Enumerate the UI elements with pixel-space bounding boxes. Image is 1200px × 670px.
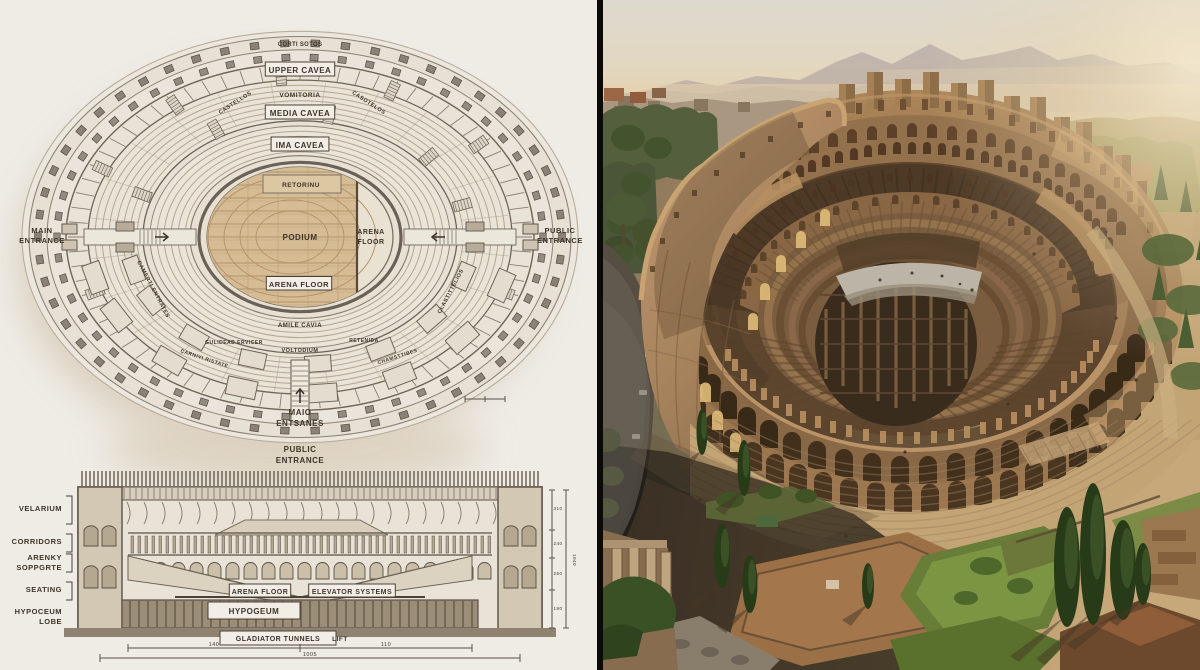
svg-text:PUBLIC: PUBLIC <box>545 226 576 235</box>
svg-text:ARENA FLOOR: ARENA FLOOR <box>269 280 329 289</box>
svg-text:ENTRANCE: ENTRANCE <box>537 236 583 245</box>
svg-text:GULIDEAD ERVICER: GULIDEAD ERVICER <box>205 340 263 346</box>
svg-text:HYPOCEUM: HYPOCEUM <box>15 607 62 616</box>
svg-text:ENTRANCE: ENTRANCE <box>276 456 325 465</box>
svg-text:140: 140 <box>209 642 220 648</box>
svg-text:310: 310 <box>553 506 562 511</box>
svg-text:240: 240 <box>553 541 562 546</box>
svg-text:CORRIDORS: CORRIDORS <box>12 537 62 546</box>
svg-text:LIFT: LIFT <box>332 636 348 643</box>
svg-text:FLOOR: FLOOR <box>358 239 385 246</box>
svg-text:LOBE: LOBE <box>39 617 62 626</box>
svg-text:MAIN: MAIN <box>31 226 52 235</box>
svg-text:CORTI SOTOS: CORTI SOTOS <box>278 42 323 48</box>
svg-text:RETENIDA: RETENIDA <box>349 338 379 344</box>
svg-text:110: 110 <box>381 642 391 648</box>
svg-text:ENTSANES: ENTSANES <box>276 419 324 428</box>
svg-text:HYPOGEUM: HYPOGEUM <box>229 607 280 616</box>
svg-text:VELARIUM: VELARIUM <box>19 504 62 513</box>
svg-text:VOMITORIA: VOMITORIA <box>279 92 320 99</box>
svg-text:SOPPGRTE: SOPPGRTE <box>16 563 62 572</box>
svg-text:1040: 1040 <box>572 554 577 566</box>
svg-text:GLADIATOR TUNNELS: GLADIATOR TUNNELS <box>236 636 320 643</box>
svg-text:180: 180 <box>553 606 562 611</box>
svg-text:MEDIA CAVEA: MEDIA CAVEA <box>270 109 331 118</box>
svg-text:ARENKY: ARENKY <box>27 553 62 562</box>
svg-text:AMILE CAVIA: AMILE CAVIA <box>278 323 322 329</box>
svg-text:MAIO: MAIO <box>289 408 312 417</box>
svg-text:VOLTODIUM: VOLTODIUM <box>282 348 319 354</box>
svg-text:1005: 1005 <box>303 652 317 658</box>
svg-text:ARENA FLOOR: ARENA FLOOR <box>232 589 289 596</box>
svg-text:IMA CAVEA: IMA CAVEA <box>276 141 325 150</box>
svg-text:UPPER CAVEA: UPPER CAVEA <box>269 66 332 75</box>
svg-text:PUBLIC: PUBLIC <box>284 445 317 454</box>
svg-text:PODIUM: PODIUM <box>283 233 318 242</box>
svg-text:RETORINU: RETORINU <box>282 182 320 189</box>
svg-text:ENTRANCE: ENTRANCE <box>19 236 65 245</box>
svg-text:260: 260 <box>553 571 562 576</box>
svg-text:ARENA: ARENA <box>357 229 384 236</box>
svg-text:SEATING: SEATING <box>26 585 62 594</box>
svg-text:ELEVATOR SYSTEMS: ELEVATOR SYSTEMS <box>312 589 392 596</box>
